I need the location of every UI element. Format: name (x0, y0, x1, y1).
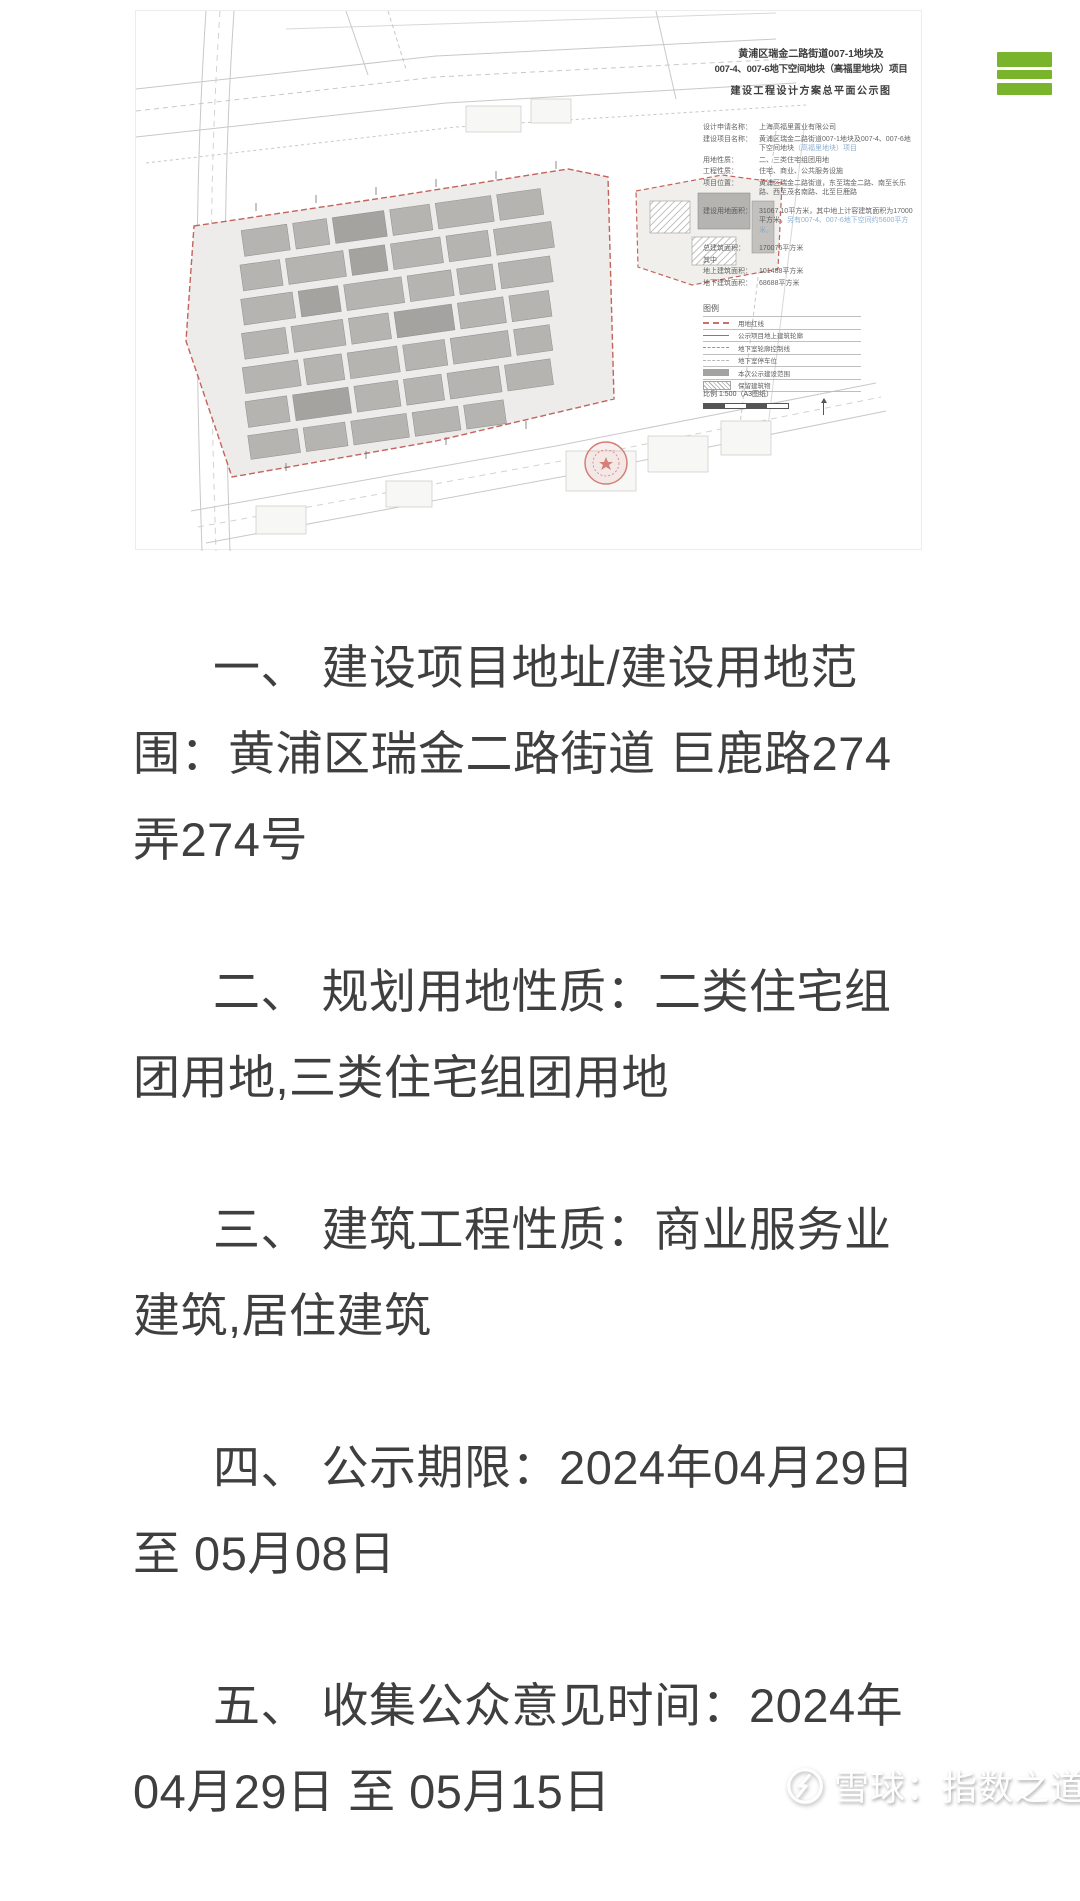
info-label: 总建筑面积： (703, 244, 759, 254)
info-value: 黄浦区瑞金二路街道007-1地块及007-4、007-6地下空间地块（高福里地块… (759, 135, 917, 154)
paragraph-line: 四、 公示期限：2024年04月29日 (133, 1425, 961, 1511)
planning-notice-image[interactable]: 黄浦区瑞金二路街道007-1地块及 007-4、007-6地下空间地块（高福里地… (135, 10, 922, 550)
info-value: 上海高福里置业有限公司 (759, 123, 917, 133)
legend-outline-sample (703, 335, 733, 336)
drawing-info-rows: 设计申请名称：上海高福里置业有限公司 建设项目名称：黄浦区瑞金二路街道007-1… (703, 123, 917, 290)
info-label: 地上建筑面积： (703, 267, 759, 277)
info-row: 其中 (703, 256, 917, 266)
info-row: 地下建筑面积：68688平方米 (703, 279, 917, 289)
info-label: 用地性质： (703, 156, 759, 166)
red-seal-stamp (585, 442, 627, 484)
paragraph-line: 弄274号 (133, 797, 961, 883)
info-label: 地下建筑面积： (703, 279, 759, 289)
xueqiu-logo-icon (784, 1765, 826, 1807)
legend-row: 公示项目地上建筑轮廓 (703, 329, 861, 342)
info-label: 工程性质： (703, 167, 759, 177)
info-value (759, 256, 917, 266)
hamburger-bar (997, 70, 1052, 79)
legend-label: 公示项目地上建筑轮廓 (738, 330, 803, 340)
info-value: 二、三类住宅组团用地 (759, 156, 917, 166)
north-arrow-icon (823, 399, 824, 415)
drawing-title-line1: 黄浦区瑞金二路街道007-1地块及 (699, 47, 923, 62)
paragraph-line: 围：黄浦区瑞金二路街道 巨鹿路274 (133, 711, 961, 797)
info-value: 68688平方米 (759, 279, 917, 289)
paragraph-land-use: 二、 规划用地性质：二类住宅组 团用地,三类住宅组团用地 (133, 949, 961, 1121)
drawing-title-line3: 建设工程设计方案总平面公示图 (699, 84, 923, 99)
map-legend: 图例 用地红线 公示项目地上建筑轮廓 地下室轮廓控制线 地下室停车位 本次公示建… (703, 303, 861, 392)
paragraph-address: 一、 建设项目地址/建设用地范 围：黄浦区瑞金二路街道 巨鹿路274 弄274号 (133, 625, 961, 883)
page-root: { "header": { "menu_color": "#79b42c" },… (0, 0, 1080, 1825)
info-value: 101488平方米 (759, 267, 917, 277)
watermark-text: 雪球：指数之道 (834, 1760, 1080, 1811)
info-value: 170076平方米 (759, 244, 917, 254)
article-body: 一、 建设项目地址/建设用地范 围：黄浦区瑞金二路街道 巨鹿路274 弄274号… (133, 625, 961, 1901)
info-row: 建设项目名称：黄浦区瑞金二路街道007-1地块及007-4、007-6地下空间地… (703, 135, 917, 154)
paragraph-publicity-period: 四、 公示期限：2024年04月29日 至 05月08日 (133, 1425, 961, 1597)
drawing-title: 黄浦区瑞金二路街道007-1地块及 007-4、007-6地下空间地块（高福里地… (699, 47, 923, 99)
legend-header: 图例 (703, 303, 861, 314)
legend-row: 本次公示建设范围 (703, 366, 861, 379)
info-row: 用地性质：二、三类住宅组团用地 (703, 156, 917, 166)
scale-label: 比例 1:500（A3图纸） (703, 389, 873, 399)
info-value: 黄浦区瑞金二路街道，东至瑞金二路、南至长乐路、西至茂名南路、北至巨鹿路 (759, 179, 917, 198)
legend-basement-sample (703, 347, 733, 348)
info-row: 项目位置：黄浦区瑞金二路街道，东至瑞金二路、南至长乐路、西至茂名南路、北至巨鹿路 (703, 179, 917, 198)
paragraph-line: 团用地,三类住宅组团用地 (133, 1035, 961, 1121)
legend-label: 用地红线 (738, 318, 764, 328)
info-label: 项目位置： (703, 179, 759, 198)
paragraph-line: 建筑,居住建筑 (133, 1273, 961, 1359)
paragraph-line: 五、 收集公众意见时间：2024年 (133, 1663, 961, 1749)
info-row: 地上建筑面积：101488平方米 (703, 267, 917, 277)
hamburger-menu-icon[interactable] (997, 52, 1052, 95)
info-label: 建设用地面积： (703, 207, 759, 236)
drawing-info-panel: 黄浦区瑞金二路街道007-1地块及 007-4、007-6地下空间地块（高福里地… (699, 11, 923, 551)
legend-scope-sample (703, 369, 733, 376)
info-value: 住宅、商业、公共服务设施 (759, 167, 917, 177)
paragraph-line: 一、 建设项目地址/建设用地范 (133, 625, 961, 711)
scale-bar (703, 403, 789, 409)
hamburger-bar (997, 52, 1052, 67)
info-label: 设计申请名称： (703, 123, 759, 133)
info-label: 建设项目名称： (703, 135, 759, 154)
legend-redline-sample (703, 322, 733, 324)
legend-label: 地下室停车位 (738, 355, 777, 365)
paragraph-project-nature: 三、 建筑工程性质：商业服务业 建筑,居住建筑 (133, 1187, 961, 1359)
info-value: 31067.10平方米，其中地上计容建筑面积为17000平方米，另有007-4、… (759, 207, 917, 236)
info-row: 建设用地面积：31067.10平方米，其中地上计容建筑面积为17000平方米，另… (703, 207, 917, 236)
info-row: 设计申请名称：上海高福里置业有限公司 (703, 123, 917, 133)
map-scale: 比例 1:500（A3图纸） (703, 389, 873, 409)
info-row: 总建筑面积：170076平方米 (703, 244, 917, 254)
legend-row: 地下室轮廓控制线 (703, 341, 861, 354)
info-label: 其中 (703, 256, 759, 266)
legend-row: 地下室停车位 (703, 354, 861, 367)
legend-label: 地下室轮廓控制线 (738, 343, 790, 353)
paragraph-line: 至 05月08日 (133, 1511, 961, 1597)
paragraph-line: 二、 规划用地性质：二类住宅组 (133, 949, 961, 1035)
legend-parking-sample (703, 360, 733, 361)
legend-label: 本次公示建设范围 (738, 368, 790, 378)
drawing-title-line2: 007-4、007-6地下空间地块（高福里地块）项目 (699, 62, 923, 77)
legend-row: 用地红线 (703, 316, 861, 329)
hamburger-bar (997, 83, 1052, 95)
watermark: 雪球：指数之道 (784, 1760, 1080, 1811)
paragraph-line: 三、 建筑工程性质：商业服务业 (133, 1187, 961, 1273)
info-row: 工程性质：住宅、商业、公共服务设施 (703, 167, 917, 177)
